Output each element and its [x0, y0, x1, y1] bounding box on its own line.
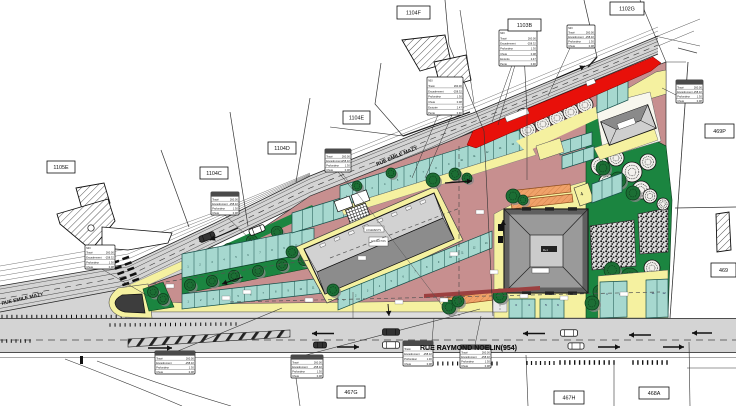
- svg-text:1103B: 1103B: [517, 23, 533, 29]
- svg-text:Profondeur: Profondeur: [500, 47, 513, 51]
- svg-text:Pente: Pente: [500, 62, 507, 66]
- svg-text:0.08: 0.08: [457, 100, 463, 104]
- svg-text:Pente: Pente: [428, 111, 435, 115]
- svg-text:-258.32: -258.32: [481, 355, 490, 359]
- svg-text:1.30: 1.30: [345, 164, 351, 168]
- svg-text:260.00: 260.00: [314, 360, 322, 364]
- svg-text:Profondeur: Profondeur: [568, 40, 581, 44]
- svg-text:0.90: 0.90: [531, 62, 537, 66]
- svg-text:Chute: Chute: [326, 168, 333, 172]
- svg-text:467G: 467G: [344, 390, 357, 396]
- svg-text:0.08: 0.08: [485, 364, 491, 368]
- svg-text:N03: N03: [428, 80, 433, 83]
- svg-text:Profondeur: Profondeur: [461, 360, 474, 364]
- svg-text:Chute: Chute: [428, 100, 435, 104]
- svg-text:1102G: 1102G: [619, 6, 635, 12]
- svg-text:-258.32: -258.32: [453, 89, 462, 93]
- svg-text:RUE RAYMOND NOELIN(954): RUE RAYMOND NOELIN(954): [420, 345, 517, 352]
- svg-text:260.00: 260.00: [230, 197, 238, 201]
- svg-text:260.00: 260.00: [528, 36, 536, 40]
- svg-text:1.30: 1.30: [317, 370, 323, 374]
- svg-text:Chute: Chute: [568, 44, 575, 48]
- svg-text:Profondeur: Profondeur: [292, 370, 305, 374]
- svg-text:Profondeur: Profondeur: [404, 357, 417, 361]
- svg-text:Chute: Chute: [292, 374, 299, 378]
- svg-text:Encadrement: Encadrement: [156, 361, 172, 365]
- svg-text:0.08: 0.08: [109, 265, 115, 269]
- svg-text:Tracé: Tracé: [212, 197, 219, 201]
- svg-text:-258.32: -258.32: [105, 256, 114, 260]
- svg-text:0.08: 0.08: [317, 374, 323, 378]
- svg-text:Chute: Chute: [156, 370, 163, 374]
- svg-text:2.47: 2.47: [531, 57, 537, 61]
- svg-text:1.30: 1.30: [457, 95, 463, 99]
- svg-text:0.08: 0.08: [531, 52, 537, 56]
- svg-text:Chute: Chute: [404, 362, 411, 366]
- svg-text:1.30: 1.30: [189, 366, 195, 370]
- svg-text:Profondeur: Profondeur: [428, 95, 441, 99]
- svg-text:-258.32: -258.32: [341, 159, 350, 163]
- svg-text:COLLECTIFS: COLLECTIFS: [371, 240, 386, 243]
- svg-text:Tracé: Tracé: [326, 154, 333, 158]
- svg-text:1104E: 1104E: [349, 115, 365, 121]
- svg-text:0.08: 0.08: [697, 99, 703, 103]
- svg-text:468A: 468A: [648, 391, 661, 397]
- svg-text:Chute: Chute: [500, 52, 507, 56]
- svg-text:260.00: 260.00: [586, 30, 594, 34]
- svg-text:1.30: 1.30: [109, 260, 115, 264]
- svg-text:1104F: 1104F: [406, 10, 422, 16]
- svg-text:Chute: Chute: [461, 364, 468, 368]
- svg-text:Chute: Chute: [677, 99, 684, 103]
- svg-text:1.30: 1.30: [233, 207, 239, 211]
- svg-text:Tracé: Tracé: [404, 347, 411, 351]
- svg-text:-258.32: -258.32: [585, 35, 594, 39]
- svg-text:N03: N03: [86, 247, 91, 250]
- svg-text:N03: N03: [568, 27, 573, 30]
- svg-text:Tracé: Tracé: [86, 251, 93, 255]
- svg-text:1.30: 1.30: [589, 40, 595, 44]
- svg-text:-258.32: -258.32: [527, 42, 536, 46]
- svg-text:0.90: 0.90: [457, 111, 463, 115]
- svg-text:260.00: 260.00: [694, 85, 702, 89]
- svg-text:469P: 469P: [713, 129, 726, 135]
- svg-text:Profondeur: Profondeur: [212, 207, 225, 211]
- svg-text:Exutoire: Exutoire: [500, 57, 510, 61]
- svg-text:Tracé: Tracé: [156, 356, 163, 360]
- svg-text:11: 11: [651, 291, 654, 295]
- svg-text:Encadrement: Encadrement: [86, 256, 102, 260]
- svg-text:-258.32: -258.32: [693, 90, 702, 94]
- svg-text:260.00: 260.00: [454, 84, 462, 88]
- svg-text:0.08: 0.08: [345, 168, 351, 172]
- svg-text:0.08: 0.08: [233, 211, 239, 215]
- svg-text:0.08: 0.08: [589, 44, 595, 48]
- svg-text:Profondeur: Profondeur: [326, 164, 339, 168]
- svg-text:N03: N03: [500, 32, 505, 35]
- svg-text:Chute: Chute: [86, 265, 93, 269]
- svg-text:Tracé: Tracé: [292, 360, 299, 364]
- svg-text:2.47: 2.47: [457, 106, 463, 110]
- svg-text:Exutoire: Exutoire: [428, 106, 438, 110]
- svg-text:467H: 467H: [563, 395, 576, 401]
- svg-text:260.00: 260.00: [106, 251, 114, 255]
- svg-text:1104C: 1104C: [206, 171, 222, 177]
- svg-text:Encadrement: Encadrement: [461, 355, 477, 359]
- svg-text:-258.32: -258.32: [185, 361, 194, 365]
- svg-text:Profondeur: Profondeur: [86, 260, 99, 264]
- svg-text:Encadrement: Encadrement: [292, 365, 308, 369]
- svg-text:Tracé: Tracé: [677, 85, 684, 89]
- svg-text:1104D: 1104D: [274, 146, 290, 152]
- svg-text:Encadrement: Encadrement: [568, 35, 584, 39]
- svg-text:-258.32: -258.32: [313, 365, 322, 369]
- svg-text:Tracé: Tracé: [568, 30, 575, 34]
- svg-text:Encadrement: Encadrement: [500, 42, 516, 46]
- svg-text:Encadrement: Encadrement: [677, 90, 693, 94]
- svg-text:469: 469: [719, 268, 728, 274]
- svg-text:-258.32: -258.32: [423, 352, 432, 356]
- svg-text:1105E: 1105E: [53, 165, 69, 171]
- svg-text:Encadrement: Encadrement: [326, 159, 342, 163]
- svg-text:260.00: 260.00: [342, 154, 350, 158]
- svg-text:Encadrement: Encadrement: [212, 202, 228, 206]
- svg-text:1.30: 1.30: [427, 357, 433, 361]
- svg-text:Tracé: Tracé: [500, 36, 507, 40]
- svg-text:Profondeur: Profondeur: [677, 95, 690, 99]
- svg-text:LOGEMENTS: LOGEMENTS: [366, 229, 381, 232]
- svg-text:12: 12: [662, 291, 666, 295]
- svg-text:1.30: 1.30: [697, 95, 703, 99]
- svg-text:0.08: 0.08: [189, 370, 195, 374]
- svg-text:1.30: 1.30: [531, 47, 537, 51]
- svg-text:260.00: 260.00: [186, 356, 194, 360]
- svg-text:0.08: 0.08: [427, 362, 433, 366]
- svg-text:Encadrement: Encadrement: [428, 89, 444, 93]
- svg-text:Profondeur: Profondeur: [156, 366, 169, 370]
- svg-text:Encadrement: Encadrement: [404, 352, 420, 356]
- svg-text:-258.32: -258.32: [229, 202, 238, 206]
- svg-text:R+1: R+1: [543, 248, 548, 252]
- svg-text:Chute: Chute: [212, 211, 219, 215]
- svg-text:1.30: 1.30: [485, 360, 491, 364]
- svg-text:Tracé: Tracé: [428, 84, 435, 88]
